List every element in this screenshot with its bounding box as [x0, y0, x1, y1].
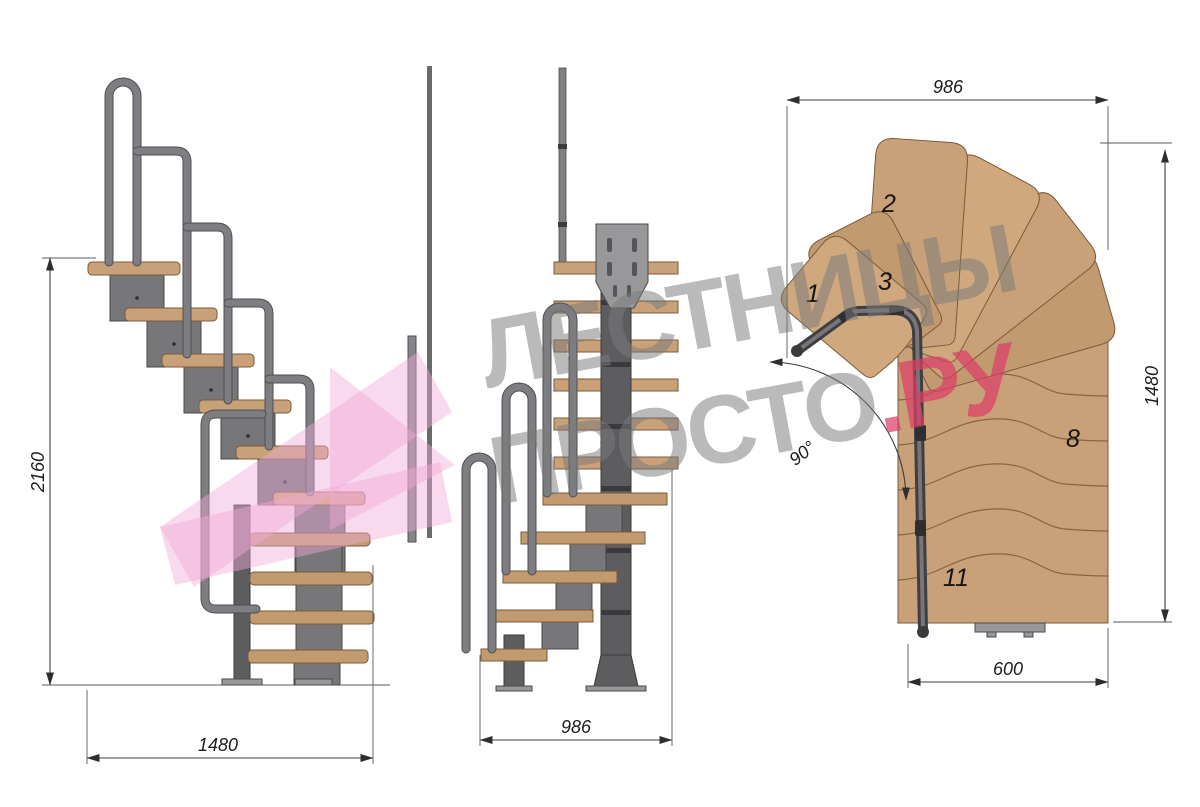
step-tread [491, 610, 593, 622]
mast-base [594, 655, 638, 686]
step-tread [250, 572, 372, 585]
base-plate [586, 686, 646, 691]
step-tread [162, 354, 254, 367]
step-module [296, 585, 342, 611]
step-tread [250, 611, 374, 624]
dim-label-plan-step-width: 600 [993, 659, 1023, 679]
handrail-loop [109, 82, 137, 262]
dim-label-plan-right: 1480 [1142, 366, 1162, 406]
step-tread [125, 308, 217, 321]
rail-end-cap [917, 626, 929, 638]
dim-label-front-width: 986 [561, 717, 592, 737]
step-module [586, 505, 622, 532]
dim-label-side-width: 1480 [198, 735, 238, 755]
technical-drawing: 2160 1480 [0, 0, 1200, 807]
base-plate [496, 686, 532, 691]
staircase-drawing-canvas: 2160 1480 [0, 0, 1200, 807]
dim-label-plan-top: 986 [933, 77, 964, 97]
dim-label-side-height: 2160 [28, 452, 48, 493]
step-number: 2 [881, 190, 896, 218]
step-number: 8 [1066, 425, 1080, 453]
base-plate [222, 679, 262, 685]
rail-joint [915, 520, 926, 536]
step-number: 11 [943, 564, 969, 592]
step-module [542, 622, 578, 649]
handrail-loop [466, 457, 492, 649]
plan-wall-bracket [975, 623, 1045, 637]
step-module [556, 583, 592, 610]
step-tread [248, 650, 368, 663]
step-tread [521, 532, 645, 544]
step-tread [503, 571, 617, 583]
step-module [570, 544, 606, 571]
base-plate [295, 679, 332, 685]
step-module [296, 624, 342, 650]
turn-post [559, 68, 566, 264]
